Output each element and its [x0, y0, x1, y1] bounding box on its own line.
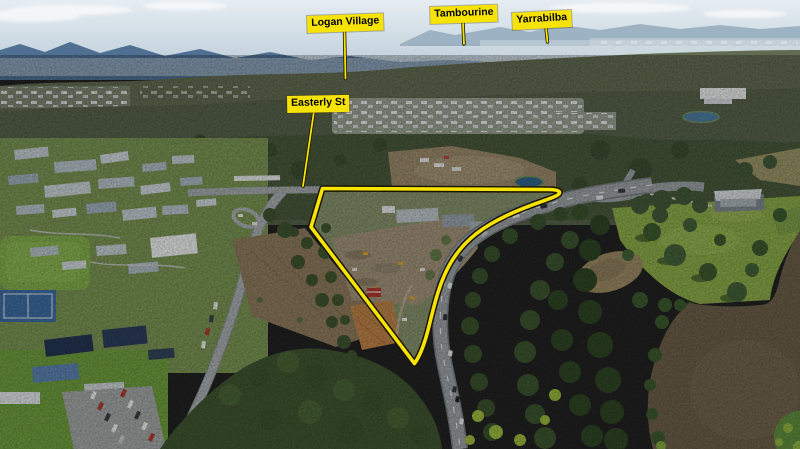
- aerial-photo-scene: [0, 0, 800, 449]
- label-logan-village: Logan Village: [307, 13, 384, 32]
- photo-grain: [0, 55, 800, 449]
- aerial-photo: Logan Village Tambourine Yarrabilba East…: [0, 0, 800, 449]
- label-easterly-st: Easterly St: [287, 95, 350, 113]
- label-tambourine: Tambourine: [430, 5, 498, 24]
- label-yarrabilba: Yarrabilba: [512, 10, 572, 30]
